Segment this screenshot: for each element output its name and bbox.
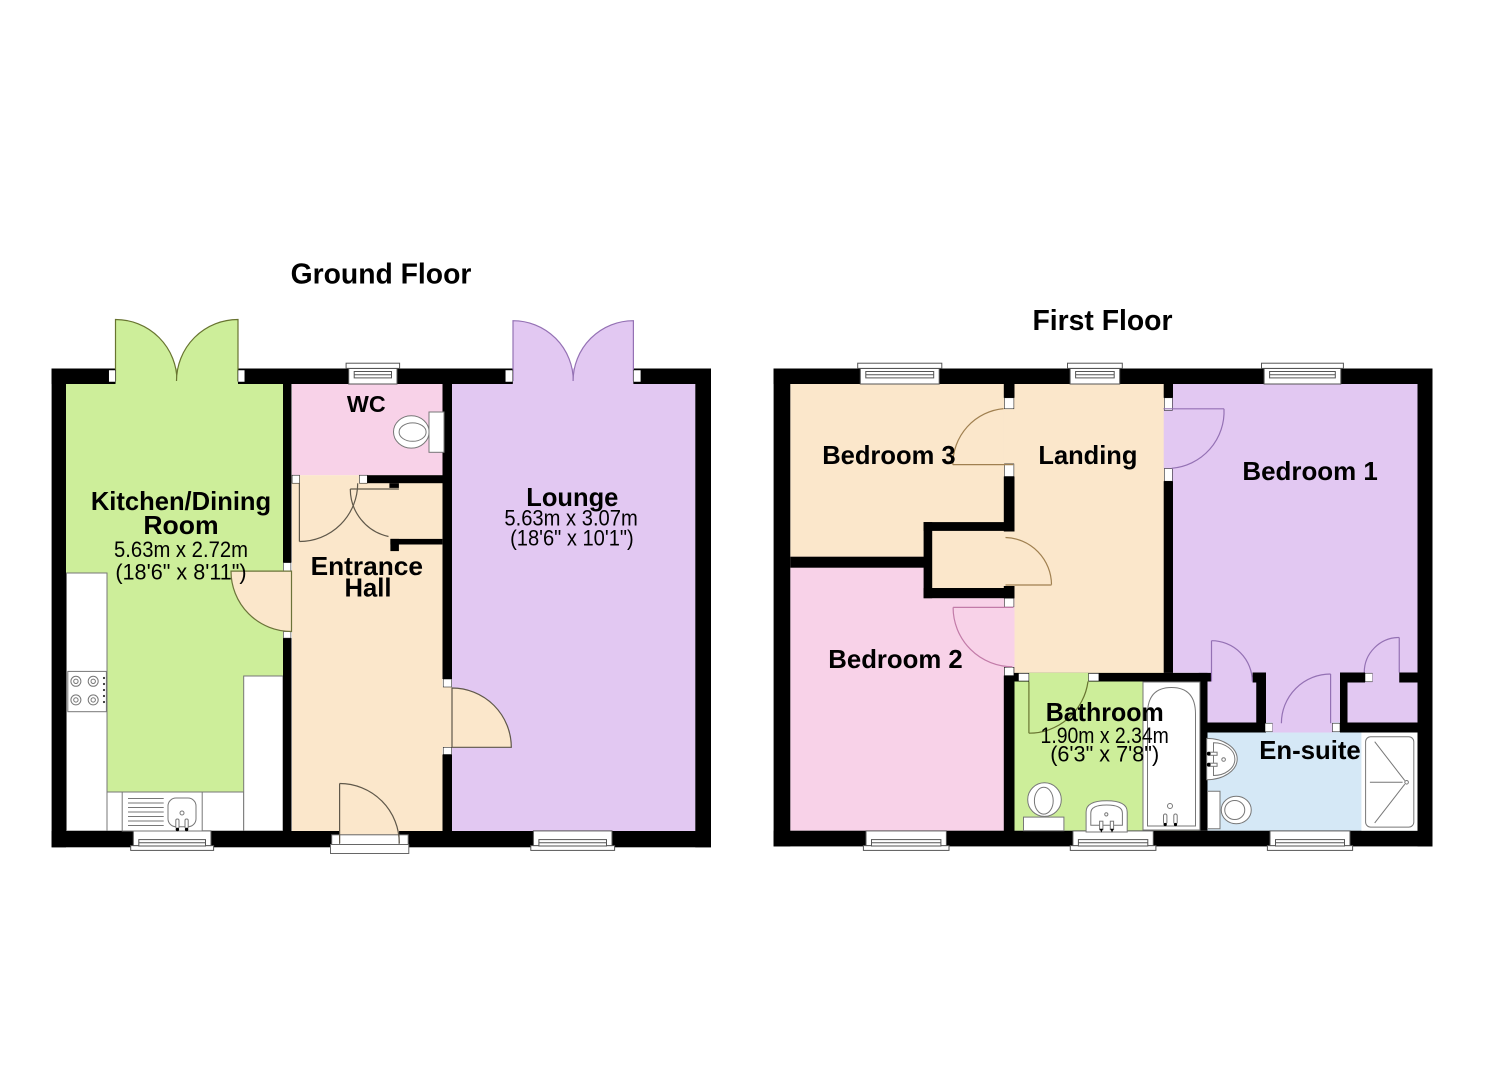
- svg-text:(6'3" x 7'8"): (6'3" x 7'8"): [1050, 742, 1159, 767]
- svg-text:(18'6" x 10'1"): (18'6" x 10'1"): [510, 526, 634, 551]
- svg-text:5.63m x 2.72m: 5.63m x 2.72m: [114, 537, 248, 562]
- svg-text:First Floor: First Floor: [1033, 305, 1173, 337]
- svg-text:Room: Room: [143, 510, 218, 540]
- svg-text:Hall: Hall: [345, 573, 392, 603]
- svg-text:Bedroom 3: Bedroom 3: [822, 440, 955, 470]
- svg-text:Ground Floor: Ground Floor: [291, 259, 472, 291]
- svg-text:Bedroom 1: Bedroom 1: [1242, 456, 1377, 486]
- svg-text:WC: WC: [347, 391, 386, 417]
- svg-text:Landing: Landing: [1038, 440, 1137, 470]
- svg-text:Bedroom 2: Bedroom 2: [828, 644, 962, 674]
- svg-text:En-suite: En-suite: [1259, 735, 1361, 765]
- svg-text:(18'6" x 8'11"): (18'6" x 8'11"): [115, 560, 246, 585]
